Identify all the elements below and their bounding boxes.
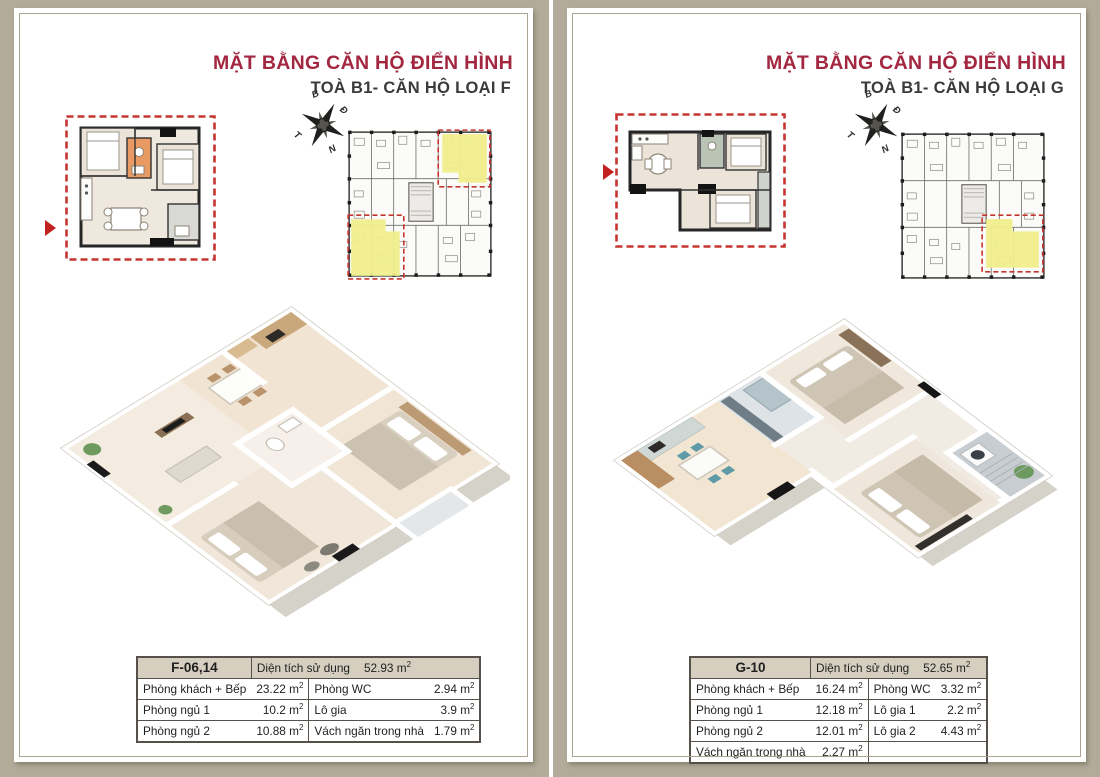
room-area: 3.9 m2 [429, 700, 481, 721]
room-area: 23.22 m2 [251, 679, 309, 700]
total-area-cell: Diện tích sử dụng52.93 m2 [251, 657, 480, 679]
room-label: Phòng WC [309, 679, 429, 700]
total-area-cell: Diện tích sử dụng52.65 m2 [811, 657, 988, 679]
unit-location-arrow-icon [603, 164, 614, 180]
table-row: Vách ngăn trong nhà 2.27 m2 [690, 742, 987, 764]
room-area: 10.88 m2 [251, 721, 309, 743]
room-label: Phòng ngủ 1 [690, 700, 811, 721]
total-area-value: 52.93 m2 [364, 661, 411, 675]
room-label: Vách ngăn trong nhà [309, 721, 429, 743]
room-label: Lô gia 1 [868, 700, 936, 721]
room-area: 1.79 m2 [429, 721, 481, 743]
table-row: Phòng ngủ 2 10.88 m2 Vách ngăn trong nhà… [137, 721, 480, 743]
unit-code: F-06,14 [137, 657, 251, 679]
room-label: Phòng ngủ 1 [137, 700, 251, 721]
room-label: Phòng ngủ 2 [690, 721, 811, 742]
room-label: Lô gia 2 [868, 721, 936, 742]
total-area-value: 52.65 m2 [923, 661, 970, 675]
unit-location-arrow-icon [45, 220, 56, 236]
room-area: 3.32 m2 [936, 679, 988, 700]
apartment-3d-render [593, 276, 1063, 658]
table-row: Phòng ngủ 2 12.01 m2 Lô gia 2 4.43 m2 [690, 721, 987, 742]
room-label: Lô gia [309, 700, 429, 721]
unit-code: G-10 [690, 657, 811, 679]
building-floorplate-plan [344, 120, 496, 284]
page-title: MẶT BẰNG CĂN HỘ ĐIỂN HÌNH [213, 52, 513, 75]
room-label: Phòng ngủ 2 [137, 721, 251, 743]
page-title: MẶT BẰNG CĂN HỘ ĐIỂN HÌNH [766, 52, 1066, 75]
room-area: 2.27 m2 [811, 742, 869, 764]
room-area: 16.24 m2 [811, 679, 869, 700]
apartment-3d-render [40, 276, 510, 658]
room-area: 12.01 m2 [811, 721, 869, 742]
room-area: 12.18 m2 [811, 700, 869, 721]
brochure-page: { "colors": { "page_background": "#b2ab9… [0, 0, 1100, 777]
room-label: Vách ngăn trong nhà [690, 742, 811, 764]
empty-cell [868, 742, 987, 764]
area-label: Diện tích sử dụng [816, 661, 909, 675]
table-row: Phòng ngủ 1 10.2 m2 Lô gia 3.9 m2 [137, 700, 480, 721]
room-area: 2.94 m2 [429, 679, 481, 700]
building-floorplate-plan [897, 122, 1049, 286]
area-table: G-10 Diện tích sử dụng52.65 m2 Phòng khá… [689, 656, 988, 764]
room-area: 4.43 m2 [936, 721, 988, 742]
unit-2d-floorplan [614, 112, 788, 255]
table-row: Phòng ngủ 1 12.18 m2 Lô gia 1 2.2 m2 [690, 700, 987, 721]
unit-2d-floorplan [64, 114, 218, 269]
page-fold-line [549, 0, 553, 777]
table-row: Phòng khách + Bếp 16.24 m2 Phòng WC 3.32… [690, 679, 987, 700]
room-label: Phòng khách + Bếp [137, 679, 251, 700]
room-label: Phòng khách + Bếp [690, 679, 811, 700]
table-row: Phòng khách + Bếp 23.22 m2 Phòng WC 2.94… [137, 679, 480, 700]
room-area: 10.2 m2 [251, 700, 309, 721]
area-label: Diện tích sử dụng [257, 661, 350, 675]
floorplan-panel-unit-f: MẶT BẰNG CĂN HỘ ĐIỂN HÌNH TOÀ B1- CĂN HỘ… [14, 8, 533, 762]
room-area: 2.2 m2 [936, 700, 988, 721]
room-label: Phòng WC [868, 679, 936, 700]
floorplan-panel-unit-g: MẶT BẰNG CĂN HỘ ĐIỂN HÌNH TOÀ B1- CĂN HỘ… [567, 8, 1086, 762]
area-table: F-06,14 Diện tích sử dụng52.93 m2 Phòng … [136, 656, 481, 743]
